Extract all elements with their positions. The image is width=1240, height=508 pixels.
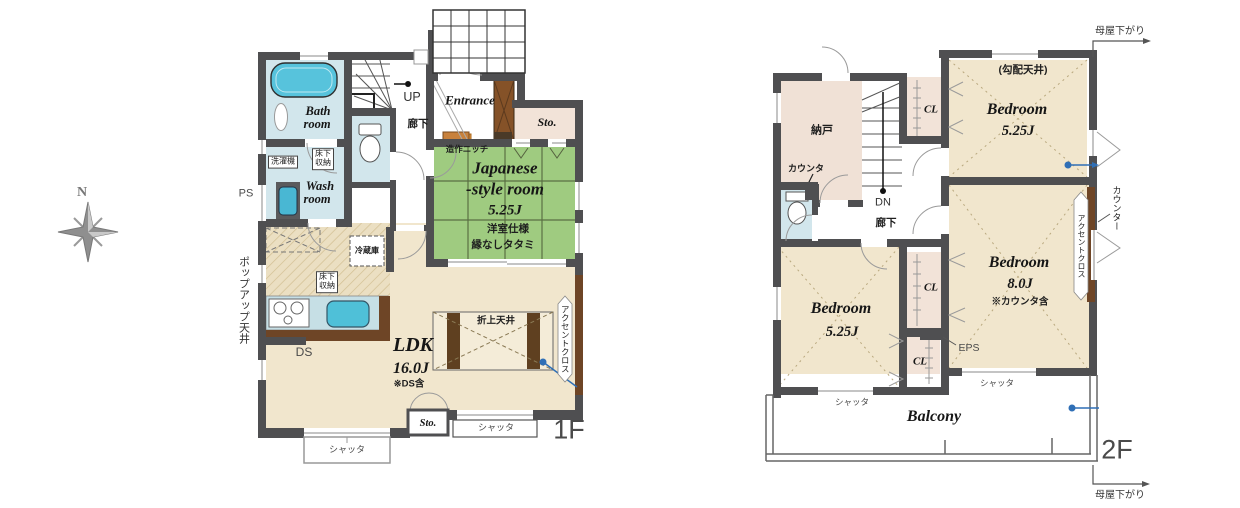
eaves-bottom-label: 母屋下がり bbox=[1095, 491, 1145, 501]
compass-icon bbox=[58, 202, 118, 262]
ldk-size: 16.0J bbox=[393, 361, 429, 377]
accent-wall-1f bbox=[575, 275, 583, 395]
toilet1-bowl-icon bbox=[360, 136, 380, 162]
eaves-top-label: 母屋下がり bbox=[1095, 27, 1145, 37]
storage-bottom-label: Sto. bbox=[420, 419, 437, 430]
toilet1-tank-icon bbox=[359, 124, 381, 135]
closet-mid-label: CL bbox=[924, 283, 938, 294]
storeroom-counter-label: カウンタ bbox=[788, 165, 824, 174]
bedroom-se-size: 8.0J bbox=[1007, 277, 1032, 292]
ds-label: DS bbox=[296, 346, 313, 358]
outside-step bbox=[414, 50, 428, 64]
bedroom-sw-size: 5.25J bbox=[826, 325, 859, 340]
folded-ceiling-label: 折上天井 bbox=[477, 316, 515, 326]
dn-label: DN bbox=[875, 198, 891, 209]
bedroom-ne-size: 5.25J bbox=[1002, 124, 1035, 139]
corridor-floor bbox=[392, 112, 430, 233]
ps-label: PS bbox=[239, 189, 254, 200]
accent-cloth-1f-label: アクセントクロス bbox=[561, 305, 570, 373]
shutter-left-label: シャッタ bbox=[329, 446, 365, 455]
closet-low-label: CL bbox=[913, 357, 927, 368]
toilet2-bowl-icon bbox=[788, 202, 806, 224]
hallway2-label: 廊下 bbox=[876, 218, 897, 229]
fridge-label: 冷蔵庫 bbox=[355, 247, 379, 255]
storage-top-label: Sto. bbox=[537, 116, 556, 128]
bedroom-se-note: ※カウンタ含 bbox=[991, 297, 1048, 307]
floor1-plan bbox=[258, 10, 583, 463]
underfloor-storage-wash-label: 床下 収納 bbox=[312, 148, 334, 170]
japanese-room-name-2: -style room bbox=[466, 181, 544, 198]
ldk-name: LDK bbox=[393, 335, 433, 355]
niche-label: 造作ニッチ bbox=[446, 145, 489, 154]
washing-machine-label: 洗濯機 bbox=[268, 156, 298, 169]
floor2-label: 2F bbox=[1101, 437, 1133, 464]
stove-icon bbox=[269, 299, 309, 327]
stairs2-floor bbox=[862, 77, 902, 197]
japanese-room-name-1: Japanese bbox=[472, 160, 537, 177]
floor2-plan bbox=[558, 38, 1151, 487]
bedroom-ne-name: Bedroom bbox=[987, 102, 1047, 118]
underfloor-storage-kitchen-label: 床下 収納 bbox=[316, 271, 338, 293]
bath-room-name-2: room bbox=[303, 118, 330, 131]
floorplan-drawing bbox=[0, 0, 1240, 508]
sink-icon bbox=[327, 301, 369, 327]
eps-label: EPS bbox=[958, 343, 979, 354]
storeroom-label: 納戸 bbox=[811, 126, 833, 137]
counter-side-panel bbox=[379, 296, 390, 341]
bath-room-name-1: Bath bbox=[305, 105, 330, 118]
shutter-sw-label: シャッタ bbox=[835, 398, 869, 407]
bedroom-se-name: Bedroom bbox=[989, 255, 1049, 271]
accent-cloth-2f-label: アクセントクロス bbox=[1077, 214, 1085, 278]
japanese-room-note-1: 洋室仕様 bbox=[487, 224, 529, 235]
entrance-label: Entrance bbox=[445, 94, 495, 107]
shutter-right-label: シャッタ bbox=[478, 424, 514, 433]
bath-stool-icon bbox=[275, 104, 288, 131]
japanese-room-note-2: 縁なしタタミ bbox=[472, 240, 535, 251]
ldk-note: ※DS含 bbox=[394, 379, 425, 389]
balcony-label: Balcony bbox=[907, 409, 961, 425]
toilet2-tank-icon bbox=[786, 192, 808, 201]
japanese-room-size: 5.25J bbox=[488, 204, 522, 219]
wash-room-name-2: room bbox=[303, 193, 330, 206]
up-label: UP bbox=[403, 91, 420, 104]
shutter-se-label: シャッタ bbox=[980, 379, 1014, 388]
compass-north-label: N bbox=[77, 186, 87, 200]
hallway1-label: 廊下 bbox=[408, 119, 429, 130]
floor1-label: 1F bbox=[553, 417, 585, 444]
wash-room-name-1: Wash bbox=[306, 180, 334, 193]
bedroom-sw-name: Bedroom bbox=[811, 301, 871, 317]
counter-right-label: カウンター bbox=[1112, 186, 1121, 231]
floorplan-page: N UP 廊下 Entrance Sto. 造作ニッチ Japanese -st… bbox=[0, 0, 1240, 508]
popup-ceiling-label: ポップアップ天井 bbox=[238, 256, 249, 344]
sloped-ceiling-label: (勾配天井) bbox=[999, 65, 1048, 76]
closet-top-label: CL bbox=[924, 105, 938, 116]
washbasin-icon bbox=[279, 187, 297, 215]
